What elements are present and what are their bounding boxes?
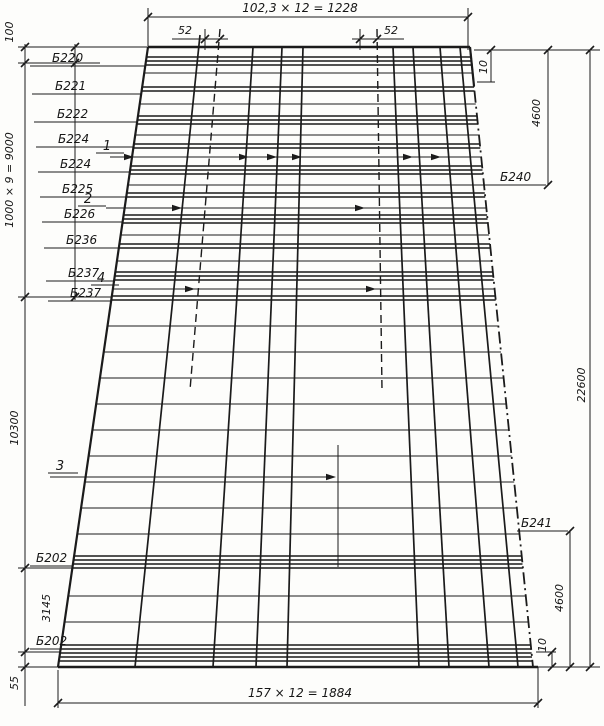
svg-text:Б236: Б236 (66, 233, 98, 247)
beam-label-b220: Б220 (30, 51, 145, 66)
dim-left-9000: 1000 × 9 = 9000 (3, 132, 16, 227)
svg-text:4: 4 (97, 271, 105, 286)
beam-label-b226: Б226 (42, 207, 123, 222)
panel-outline (58, 47, 538, 667)
svg-text:Б224: Б224 (58, 132, 89, 146)
dim-right-10-top: 10 (477, 60, 490, 74)
beam-label-b202a: Б202 (30, 551, 73, 566)
dim-right-22600: 22600 (575, 368, 588, 403)
svg-text:Б222: Б222 (57, 107, 88, 121)
beam-label-b224b: Б224 (38, 157, 130, 172)
svg-text:Б221: Б221 (55, 79, 86, 93)
beam-label-b236: Б236 (44, 233, 119, 248)
drawing-canvas: 102,3 × 12 = 1228 52 52 100 1000 (0, 0, 604, 726)
svg-text:Б240: Б240 (500, 170, 532, 184)
mark-3: 3 (48, 445, 338, 567)
anchor-line-dashed-right (377, 29, 382, 390)
dimension-chain-right-overall: 22600 (575, 50, 594, 671)
dimension-chain-left: 100 1000 × 9 = 9000 10300 3145 55 (3, 22, 148, 707)
dim-right-10-bottom: 10 (536, 638, 549, 652)
dim-bottom-label: 157 × 12 = 1884 (248, 686, 352, 700)
dim-left-10300: 10300 (8, 411, 21, 446)
dim-left-100: 100 (3, 22, 16, 43)
svg-text:Б237: Б237 (68, 266, 100, 280)
dim-52-left-label: 52 (178, 24, 192, 37)
dimension-bottom: 157 × 12 = 1884 (54, 667, 542, 708)
dimension-top: 102,3 × 12 = 1228 (144, 1, 472, 50)
beam-label-b221: Б221 (32, 79, 141, 94)
dim-right-4600-bottom: 4600 (553, 584, 566, 612)
beam-label-b222: Б222 (34, 107, 137, 122)
drawing-page: 102,3 × 12 = 1228 52 52 100 1000 (0, 0, 604, 726)
dimension-chain-right-top: 10 4600 (474, 46, 600, 189)
dim-52-right-label: 52 (384, 24, 398, 37)
svg-text:Б202: Б202 (36, 551, 67, 565)
beam-label-b241: Б241 (517, 516, 568, 531)
svg-text:3: 3 (56, 459, 64, 474)
svg-text:2: 2 (84, 192, 92, 207)
svg-text:Б241: Б241 (521, 516, 552, 530)
beam-label-b202b: Б202 (30, 634, 67, 649)
dim-left-3145: 3145 (40, 594, 53, 622)
svg-text:Б237: Б237 (70, 286, 102, 300)
svg-text:Б202: Б202 (36, 634, 67, 648)
svg-text:1: 1 (103, 139, 111, 154)
dim-right-4600-top: 4600 (530, 99, 543, 127)
dim-left-55: 55 (8, 676, 21, 690)
svg-text:Б224: Б224 (60, 157, 91, 171)
svg-text:Б220: Б220 (52, 51, 84, 65)
beam-label-b237b: Б237 (48, 286, 111, 301)
beam-label-b224a: Б224 (36, 132, 134, 147)
beam-label-b240: Б240 (477, 170, 546, 185)
dim-top-label: 102,3 × 12 = 1228 (242, 1, 358, 15)
svg-text:Б226: Б226 (64, 207, 96, 221)
